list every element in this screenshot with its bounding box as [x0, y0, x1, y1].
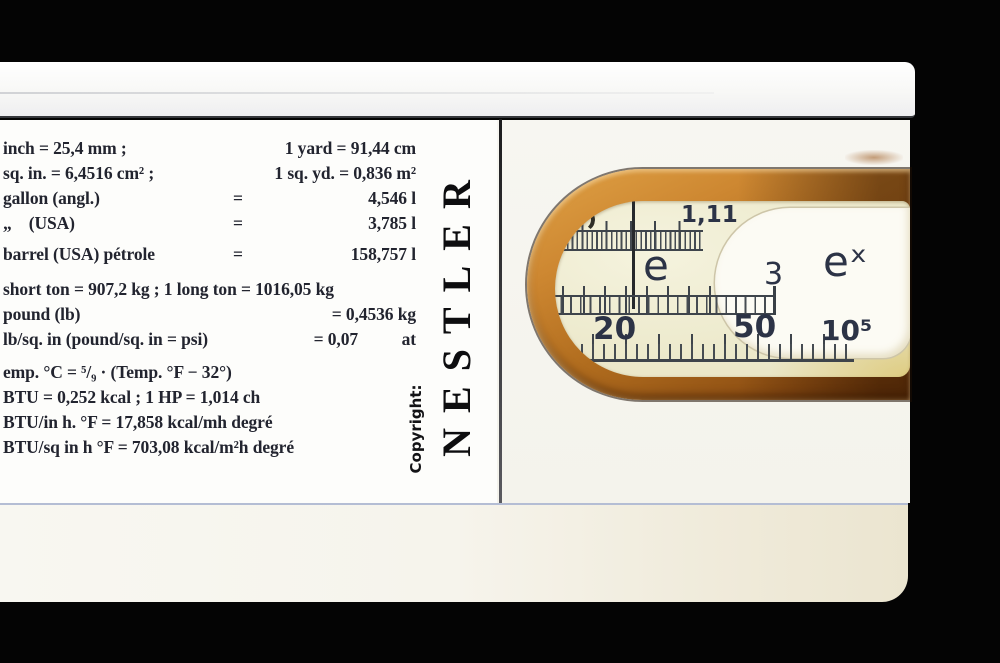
scale-label-1-11: 1,11 [681, 204, 738, 227]
row-left: BTU/in h. °F = 17,858 kcal/mh degré [3, 412, 273, 433]
table-row: sq. in. = 6,4516 cm² ;1 sq. yd. = 0,836 … [3, 163, 416, 188]
table-row: barrel (USA) pétrole=158,757 l [3, 244, 416, 269]
conversion-table: inch = 25,4 mm ;1 yard = 91,44 cm sq. in… [3, 138, 416, 462]
row-left: gallon (angl.) [3, 188, 100, 209]
row-left: lb/sq. in (pound/sq. in = psi) [3, 329, 208, 350]
row-left: BTU = 0,252 kcal ; 1 HP = 1,014 ch [3, 387, 260, 408]
table-row: BTU = 0,252 kcal ; 1 HP = 1,014 ch [3, 387, 416, 412]
panel-seam-line [499, 119, 502, 503]
row-left: short ton = 907,2 kg ; 1 long ton = 1016… [3, 279, 334, 300]
scale-label-3: 3 [764, 260, 783, 290]
table-row: BTU/in h. °F = 17,858 kcal/mh degré [3, 412, 416, 437]
scratch-mark [0, 92, 714, 94]
table-row: „ (USA)=3,785 l [3, 213, 416, 238]
table-row: inch = 25,4 mm ;1 yard = 91,44 cm [3, 138, 416, 163]
row-left: emp. °C = ⁵/₉ · (Temp. °F − 32°) [3, 362, 232, 383]
top-scale-ticks [557, 230, 703, 251]
row-equals: = [233, 213, 243, 234]
row-value: 3,785 l [368, 213, 416, 234]
row-left: sq. in. = 6,4516 cm² ; [3, 163, 154, 184]
row-value: 158,757 l [351, 244, 416, 265]
table-row: short ton = 907,2 kg ; 1 long ton = 1016… [3, 279, 416, 304]
brand-name: NESTLER [433, 141, 479, 481]
row-left: pound (lb) [3, 304, 80, 325]
rust-stain [845, 150, 903, 165]
scale-label-20: 20 [593, 314, 636, 345]
slide-rule-photo: inch = 25,4 mm ;1 yard = 91,44 cm sq. in… [0, 0, 1000, 663]
row-value: 4,546 l [368, 188, 416, 209]
scale-label-e-to-x: eˣ [823, 241, 867, 283]
scale-label-10e5: 10⁵ [821, 317, 872, 345]
scale-label-50: 50 [733, 312, 776, 343]
copyright-label: Copyright: [407, 383, 425, 475]
row-value: 1 yard = 91,44 cm [285, 138, 416, 159]
row-left: „ (USA) [3, 213, 75, 234]
window-interior: 1,11 e 3 eˣ 20 50 10⁵ [555, 201, 910, 377]
table-row: lb/sq. in (pound/sq. in = psi)= 0,07at [3, 329, 416, 354]
row-left: barrel (USA) pétrole [3, 244, 155, 265]
row-value: = 0,07 [314, 329, 358, 350]
scale-label-e: e [643, 245, 669, 287]
table-row: gallon (angl.)=4,546 l [3, 188, 416, 213]
table-row: pound (lb)= 0,4536 kg [3, 304, 416, 329]
row-left: inch = 25,4 mm ; [3, 138, 127, 159]
table-row: emp. °C = ⁵/₉ · (Temp. °F − 32°) [3, 362, 416, 387]
row-value: 1 sq. yd. = 0,836 m² [274, 163, 416, 184]
row-unit: at [358, 329, 416, 350]
row-value: = 0,4536 kg [332, 304, 416, 325]
rule-top-edge-strip [0, 62, 915, 118]
rule-bottom-edge-strip [0, 503, 908, 602]
table-row: BTU/sq in h °F = 703,08 kcal/m²h degré [3, 437, 416, 462]
row-left: BTU/sq in h °F = 703,08 kcal/m²h degré [3, 437, 294, 458]
row-equals: = [233, 188, 243, 209]
row-equals: = [233, 244, 243, 265]
